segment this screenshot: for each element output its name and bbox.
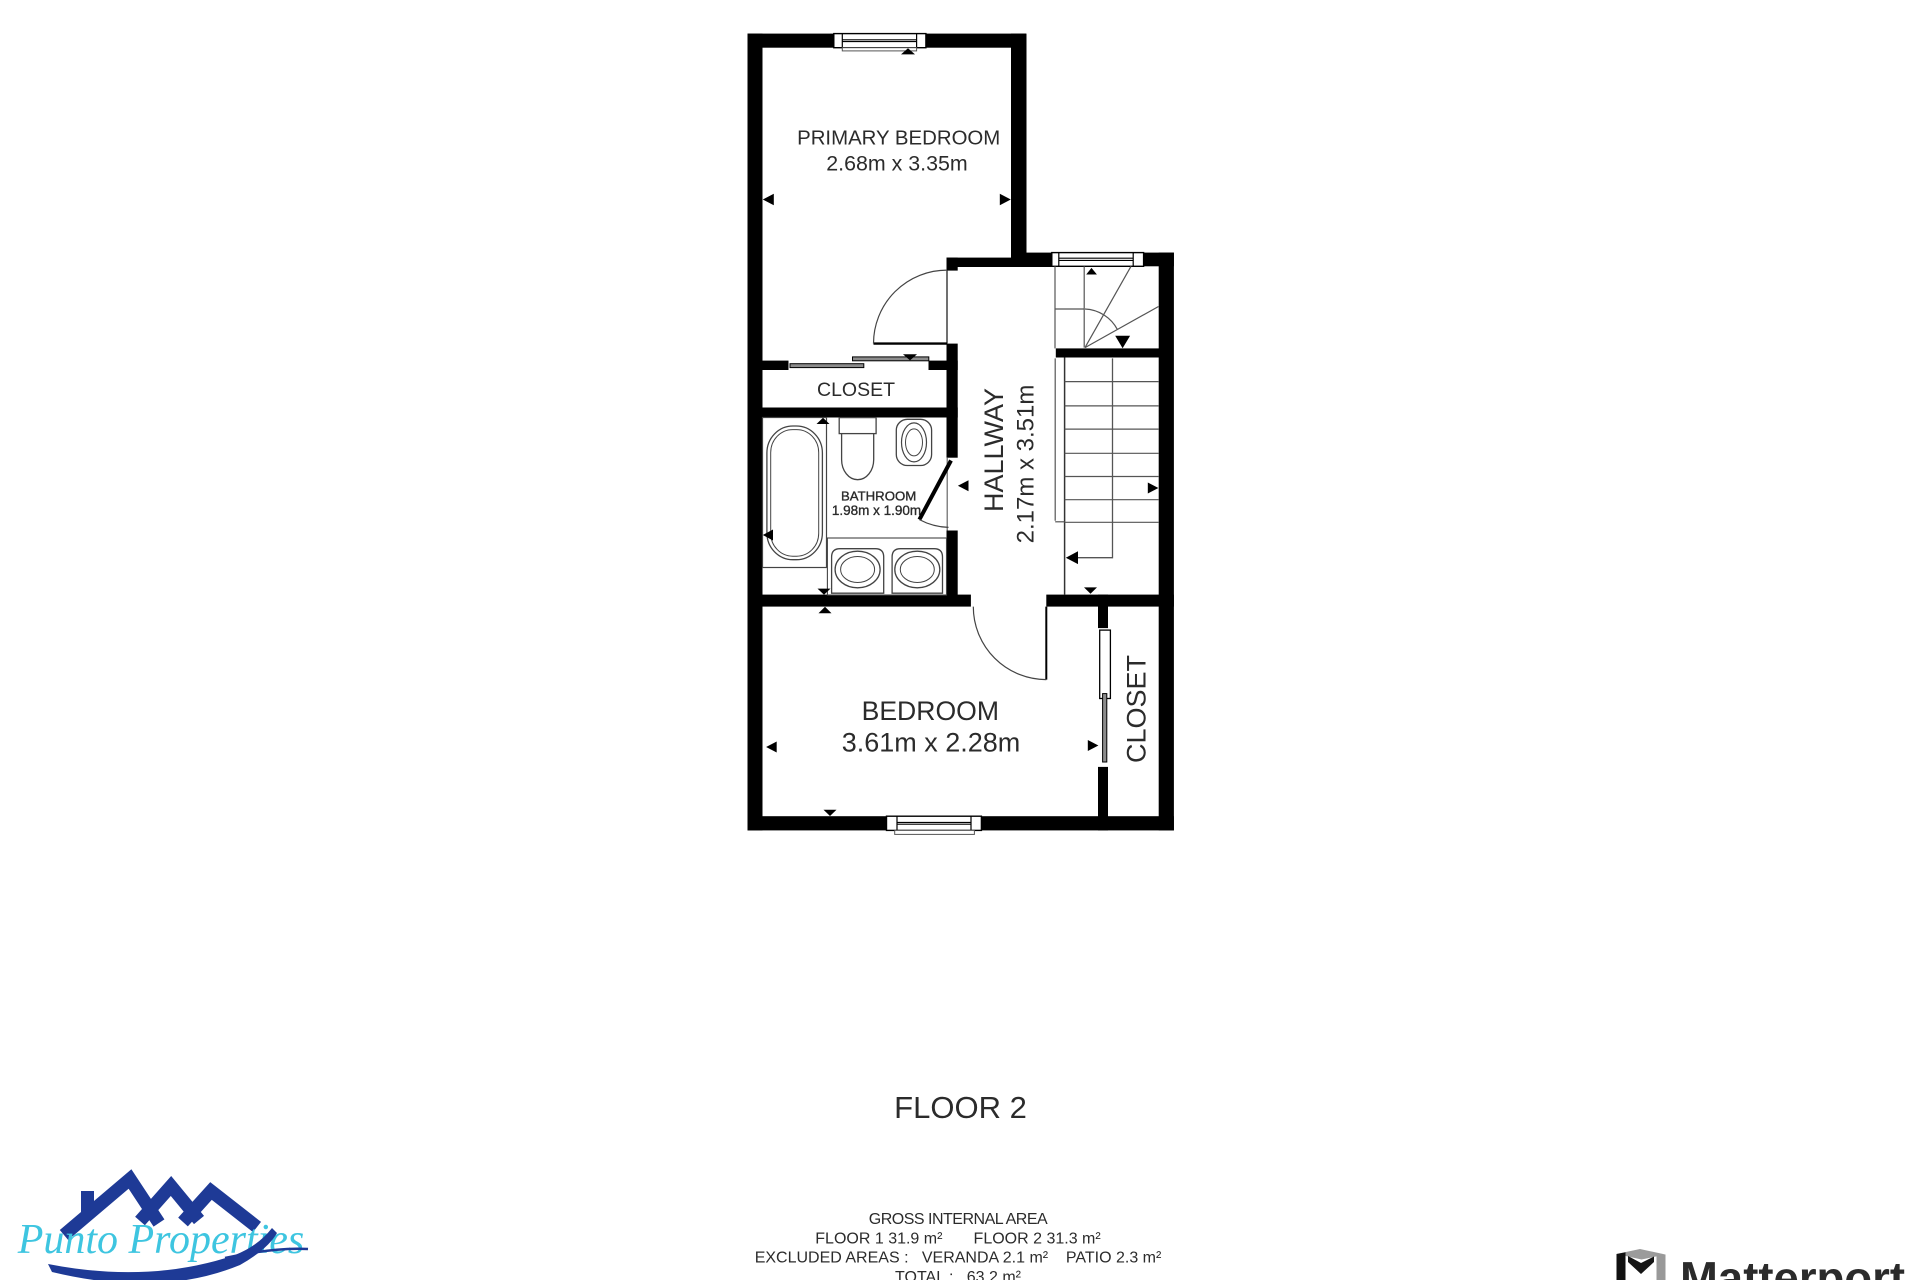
- svg-text:CLOSET: CLOSET: [817, 379, 895, 401]
- svg-text:BEDROOM: BEDROOM: [862, 696, 999, 726]
- svg-text:CLOSET: CLOSET: [1122, 655, 1152, 763]
- svg-text:3.61m x 2.28m: 3.61m x 2.28m: [842, 728, 1021, 758]
- svg-text:2.17m x 3.51m: 2.17m x 3.51m: [1013, 385, 1040, 544]
- svg-text:FLOOR 2: FLOOR 2: [894, 1090, 1027, 1125]
- svg-text:2.68m x 3.35m: 2.68m x 3.35m: [826, 152, 967, 176]
- svg-text:1.98m x 1.90m: 1.98m x 1.90m: [832, 503, 921, 518]
- svg-text:GROSS INTERNAL AREA: GROSS INTERNAL AREA: [869, 1211, 1048, 1228]
- svg-text:FLOOR 1 31.9 m² FLOOR 2: FLOOR 1 31.9 m² FLOOR 2 31.3 m²: [815, 1230, 1101, 1247]
- svg-text:BATHROOM: BATHROOM: [841, 489, 916, 504]
- svg-text:Matterport: Matterport: [1680, 1253, 1905, 1280]
- svg-text:TOTAL : 63.2 m²: TOTAL : 63.2 m²: [895, 1269, 1022, 1280]
- svg-text:EXCLUDED AREAS : VERANDA 2.1: EXCLUDED AREAS : VERANDA 2.1 m² PATIO 2.…: [755, 1250, 1162, 1267]
- svg-text:PRIMARY BEDROOM: PRIMARY BEDROOM: [797, 128, 1000, 150]
- svg-text:HALLWAY: HALLWAY: [979, 388, 1009, 512]
